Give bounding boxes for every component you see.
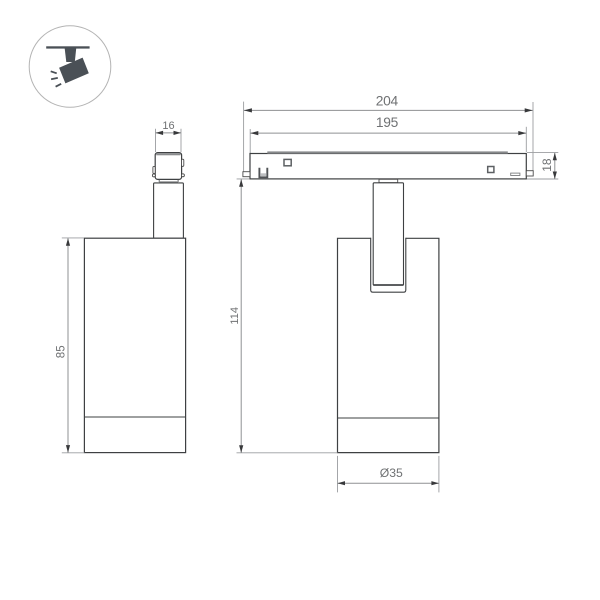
svg-text:114: 114 (229, 307, 241, 325)
svg-text:85: 85 (55, 345, 67, 358)
svg-text:195: 195 (376, 115, 399, 130)
svg-text:Ø35: Ø35 (380, 466, 403, 480)
svg-text:18: 18 (540, 158, 554, 172)
svg-text:204: 204 (376, 93, 399, 108)
svg-text:16: 16 (162, 120, 174, 132)
